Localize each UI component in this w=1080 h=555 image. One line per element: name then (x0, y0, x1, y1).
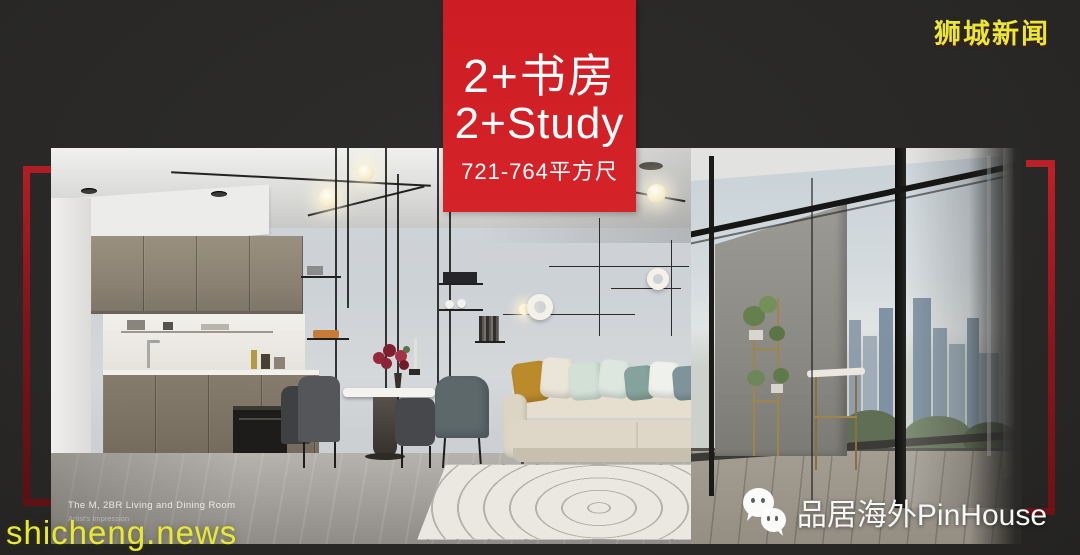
watermark-site-top-right: 狮城新闻 (934, 12, 1050, 51)
shelf (439, 309, 483, 311)
chair-leg (334, 442, 336, 468)
books (479, 316, 499, 341)
frame-bracket-right-vertical (1048, 160, 1055, 515)
flower (381, 358, 392, 369)
built-in-oven (233, 406, 287, 456)
chair-leg (303, 442, 305, 468)
balcony-table-leg (855, 376, 857, 470)
counter-bottle (251, 350, 257, 369)
lamp-shade (639, 162, 663, 170)
wall-line-art (611, 288, 681, 289)
kitchen-upper-cabinets (91, 236, 303, 314)
potted-plant (747, 370, 765, 386)
orange-decor-tray (313, 330, 339, 338)
photo-right-fade (969, 148, 1021, 544)
plant-pot (749, 330, 763, 340)
partition-wire (437, 148, 439, 398)
plant-stand (755, 348, 779, 350)
unit-type-english: 2+Study (455, 100, 625, 148)
balcony-table-bar (815, 416, 857, 418)
recessed-light (211, 191, 227, 197)
glass-divider (811, 178, 813, 500)
photo-caption: The M, 2BR Living and Dining Room (68, 500, 235, 511)
chair-leg (401, 446, 403, 468)
shelf (439, 283, 483, 285)
plant-pot (771, 384, 783, 393)
decor-boxes (443, 272, 477, 283)
publisher-watermark: 品居海外PinHouse (743, 486, 1047, 538)
partition-wire (385, 148, 387, 416)
potted-plant (759, 296, 777, 313)
decor-vase (457, 299, 466, 308)
unit-type-chinese: 2+书房 (463, 52, 615, 100)
frame-bracket-left-vertical (23, 166, 30, 506)
shelf (307, 338, 349, 340)
kitchen-rail (121, 331, 273, 333)
counter-bottle (274, 357, 285, 369)
door-frame (709, 156, 714, 496)
ring-wall-lamp (647, 268, 669, 290)
potted-plant (769, 326, 785, 341)
plant-stand (755, 400, 779, 402)
decor-box (307, 266, 323, 275)
partition-wire (347, 148, 349, 308)
wall-line-art (549, 266, 689, 267)
wechat-bubble-small (761, 508, 786, 532)
dining-table-pedestal (373, 397, 397, 457)
ring-wall-lamp (527, 294, 553, 320)
balcony-table-leg (815, 376, 817, 470)
globe-lamp (647, 184, 666, 203)
watermark-site-bottom-left: shicheng.news (6, 514, 237, 552)
candle-holder (409, 369, 420, 375)
recessed-light (81, 188, 97, 194)
kitchen-rail-item (163, 322, 173, 330)
flower-leaf (403, 346, 410, 353)
partition-wire (335, 148, 337, 416)
dining-table-top (343, 388, 435, 397)
publisher-name: 品居海外PinHouse (797, 490, 1047, 534)
wechat-icon (743, 486, 791, 538)
decor-vase (445, 300, 454, 309)
promo-image: The M, 2BR Living and Dining Room Artist… (0, 0, 1080, 555)
chair-leg (429, 446, 431, 468)
door-frame-main (895, 148, 906, 508)
kitchen-side-wall (51, 198, 91, 456)
candlestick (414, 339, 417, 372)
frame-bracket-right-top (1026, 160, 1055, 167)
dining-chair (395, 398, 435, 446)
counter-bottle (261, 354, 270, 369)
dining-chair (435, 376, 489, 438)
potted-plant (773, 368, 789, 383)
unit-type-banner: 2+书房 2+Study 721-764平方尺 (443, 0, 636, 212)
globe-lamp (357, 164, 374, 181)
kitchen-rail-item (201, 324, 229, 330)
flower (399, 360, 409, 370)
shelf (475, 341, 505, 343)
faucet (147, 340, 150, 368)
shelf (301, 276, 341, 278)
floor-area: 721-764平方尺 (461, 154, 618, 186)
dining-table-foot (365, 453, 405, 460)
dining-chair (298, 376, 340, 442)
kitchen-rail-item (127, 320, 145, 330)
wall-line-art (599, 218, 600, 336)
